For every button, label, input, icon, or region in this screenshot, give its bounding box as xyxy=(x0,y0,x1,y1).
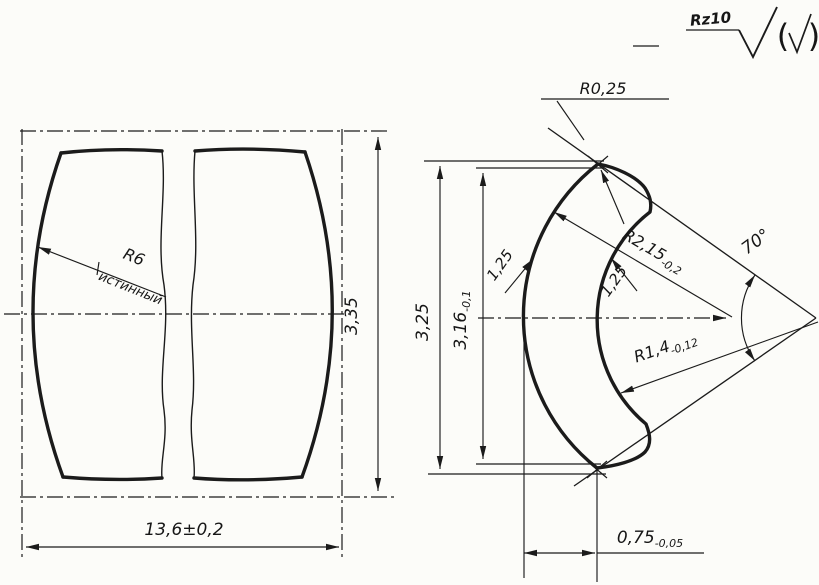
right-view-outline xyxy=(523,164,650,468)
r6-true-note: истинный xyxy=(96,269,164,308)
technical-drawing: R6 истинный 3,35 13,6±0,2 70° xyxy=(0,0,819,585)
inner-thickness-label: 1,25 xyxy=(597,262,631,300)
tip-radius-leader-2 xyxy=(601,170,624,224)
r6-radius-label: R6 xyxy=(121,244,148,270)
dim-angle: 70° xyxy=(738,225,774,361)
tip-radius-leader-1 xyxy=(557,101,584,140)
dim-left-height: 3,35 xyxy=(342,137,378,491)
dim-left-height-label: 3,35 xyxy=(342,297,362,335)
inner-radius-tol: -0,12 xyxy=(669,336,700,358)
dim-left-width: 13,6±0,2 xyxy=(26,520,339,547)
dim-angle-arc xyxy=(741,275,755,361)
profile-inner-curve xyxy=(597,164,651,468)
dim-outer-height-label: 3,25 xyxy=(413,303,433,341)
outer-thickness-label: 1,25 xyxy=(483,246,517,284)
right-view: 70° R2,15-0,2 R1,4-0,12 R0,25 xyxy=(413,79,818,582)
outline-top-left xyxy=(61,150,162,153)
dim-inner-radius-label: R1,4-0,12 xyxy=(631,327,700,369)
dim-inner-height: 3,16-0,1 xyxy=(451,173,483,459)
dim-inner-radius: R1,4-0,12 xyxy=(621,322,818,393)
roughness-grade-label: Rz10 xyxy=(689,8,732,30)
paren-close: ) xyxy=(808,17,819,55)
outer-radius-value: R2,15 xyxy=(619,225,669,265)
outline-bottom-right xyxy=(194,477,302,480)
dim-outer-radius: R2,15-0,2 xyxy=(554,212,732,317)
outer-radius-tol: -0,2 xyxy=(658,256,683,278)
dim-outer-radius-line xyxy=(554,212,732,317)
inner-height-tol: -0,1 xyxy=(460,290,473,311)
r6-leader-tick xyxy=(97,262,99,275)
profile-outer-arc xyxy=(523,164,598,468)
dim-bottom-width: 0,75-0,05 xyxy=(524,528,704,553)
outline-bottom-left xyxy=(63,477,162,479)
left-view: R6 истинный 3,35 13,6±0,2 xyxy=(4,129,394,560)
bottom-width-tol: -0,05 xyxy=(655,537,683,550)
outline-top-right xyxy=(195,149,305,152)
dim-left-width-label: 13,6±0,2 xyxy=(144,520,223,540)
angle-construction-lines xyxy=(548,128,816,486)
drawing-sheet: R6 истинный 3,35 13,6±0,2 70° xyxy=(0,0,819,585)
dim-angle-label: 70° xyxy=(738,225,774,259)
dim-outer-height: 3,25 xyxy=(413,166,440,469)
inner-height-value: 3,16 xyxy=(451,312,471,350)
extension-lines xyxy=(424,161,606,582)
surface-finish-mark: Rz10 ( ) xyxy=(633,7,819,57)
dim-tip-radius-label: R0,25 xyxy=(580,79,627,98)
paren-open: ( xyxy=(777,17,789,55)
inner-radius-value: R1,4 xyxy=(631,336,672,366)
left-view-chain-lines xyxy=(4,129,394,560)
r6-leader: R6 истинный xyxy=(38,244,166,308)
roughness-check-icon xyxy=(739,7,777,57)
dim-bottom-width-label: 0,75-0,05 xyxy=(617,528,683,550)
outline-left-arc xyxy=(33,153,63,477)
bottom-width-value: 0,75 xyxy=(617,528,655,548)
dim-inner-height-label: 3,16-0,1 xyxy=(451,290,473,349)
